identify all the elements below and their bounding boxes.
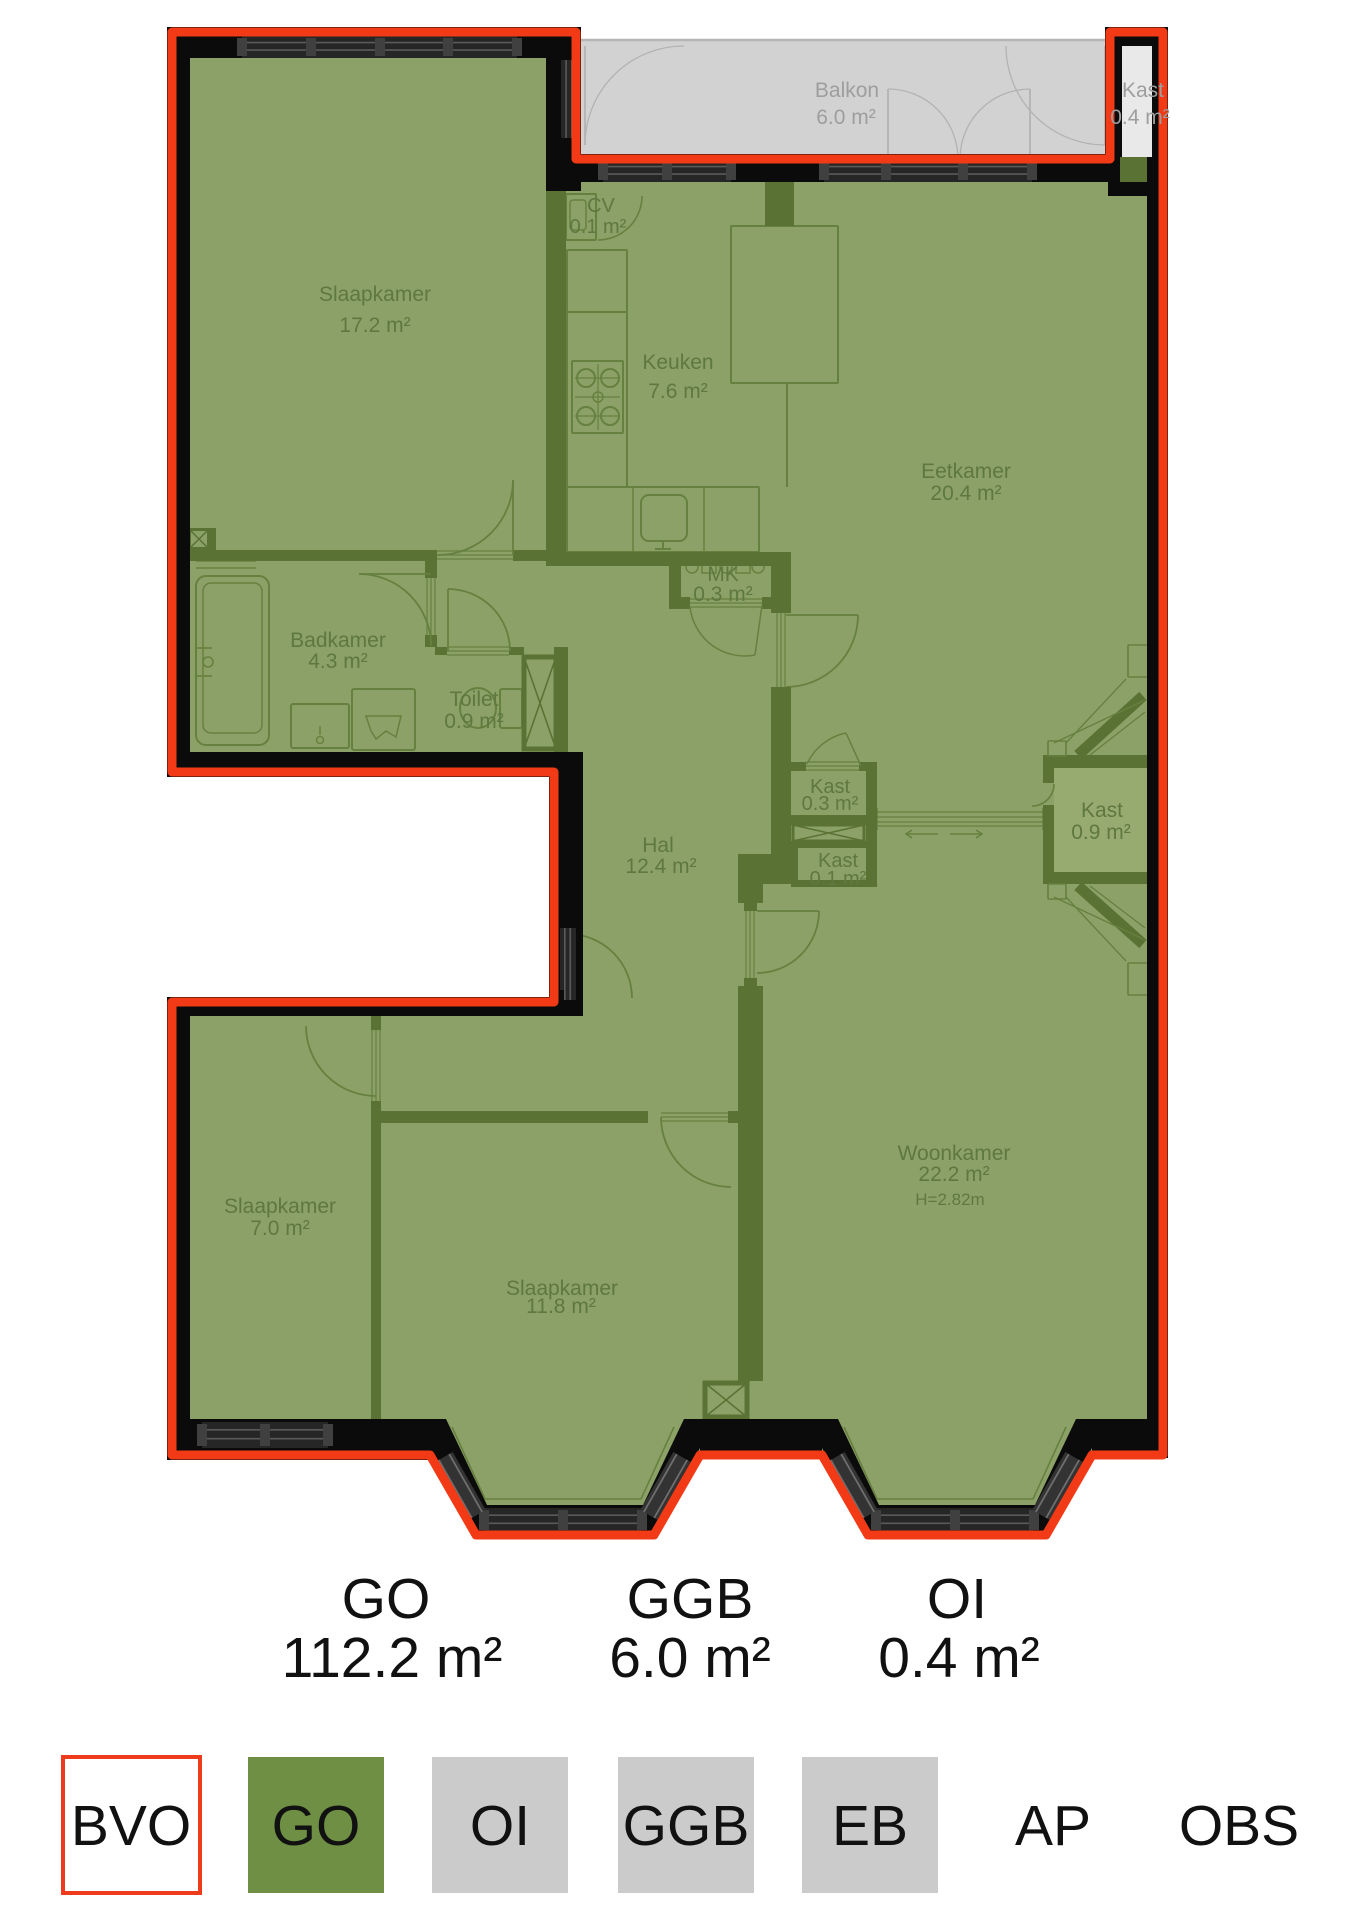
- svg-text:0.3 m²: 0.3 m²: [802, 793, 859, 815]
- svg-text:22.2 m²: 22.2 m²: [918, 1163, 989, 1186]
- svg-text:Hal: Hal: [642, 834, 674, 857]
- svg-text:6.0 m²: 6.0 m²: [609, 1626, 771, 1690]
- svg-text:OI: OI: [927, 1567, 987, 1631]
- svg-text:0.4 m²: 0.4 m²: [1110, 106, 1170, 129]
- svg-text:11.8 m²: 11.8 m²: [526, 1295, 596, 1318]
- svg-text:CV: CV: [587, 195, 615, 217]
- svg-text:0.1 m²: 0.1 m²: [810, 868, 867, 890]
- svg-text:EB: EB: [832, 1794, 908, 1858]
- svg-text:112.2 m²: 112.2 m²: [282, 1626, 503, 1690]
- svg-text:GO: GO: [272, 1794, 361, 1858]
- svg-text:Toilet: Toilet: [449, 688, 498, 711]
- svg-text:Keuken: Keuken: [642, 351, 713, 374]
- svg-text:OI: OI: [470, 1794, 530, 1858]
- svg-text:0.1 m²: 0.1 m²: [570, 216, 627, 238]
- svg-text:GGB: GGB: [627, 1567, 754, 1631]
- svg-text:Kast: Kast: [1122, 79, 1164, 102]
- svg-text:4.3 m²: 4.3 m²: [308, 650, 368, 673]
- svg-text:Eetkamer: Eetkamer: [921, 460, 1011, 483]
- svg-text:H=2.82m: H=2.82m: [915, 1190, 984, 1209]
- svg-text:Kast: Kast: [1081, 799, 1123, 822]
- svg-text:0.9 m²: 0.9 m²: [1071, 821, 1131, 844]
- svg-text:20.4 m²: 20.4 m²: [930, 482, 1001, 505]
- svg-text:0.3 m²: 0.3 m²: [693, 583, 753, 606]
- svg-text:BVO: BVO: [71, 1794, 191, 1858]
- svg-text:Slaapkamer: Slaapkamer: [224, 1195, 336, 1218]
- svg-text:12.4 m²: 12.4 m²: [625, 855, 696, 878]
- svg-text:Balkon: Balkon: [815, 79, 879, 102]
- svg-text:Woonkamer: Woonkamer: [898, 1142, 1011, 1165]
- svg-text:7.6 m²: 7.6 m²: [648, 380, 708, 403]
- svg-text:17.2 m²: 17.2 m²: [339, 314, 410, 337]
- svg-text:Slaapkamer: Slaapkamer: [319, 283, 431, 306]
- svg-text:AP: AP: [1015, 1794, 1091, 1858]
- svg-text:0.4 m²: 0.4 m²: [878, 1626, 1040, 1690]
- svg-text:Badkamer: Badkamer: [290, 629, 386, 652]
- svg-text:OBS: OBS: [1179, 1794, 1299, 1858]
- svg-text:GO: GO: [342, 1567, 431, 1631]
- svg-text:7.0 m²: 7.0 m²: [250, 1217, 310, 1240]
- svg-text:GGB: GGB: [623, 1794, 750, 1858]
- svg-text:6.0 m²: 6.0 m²: [816, 106, 876, 129]
- svg-text:0.9 m²: 0.9 m²: [444, 710, 504, 733]
